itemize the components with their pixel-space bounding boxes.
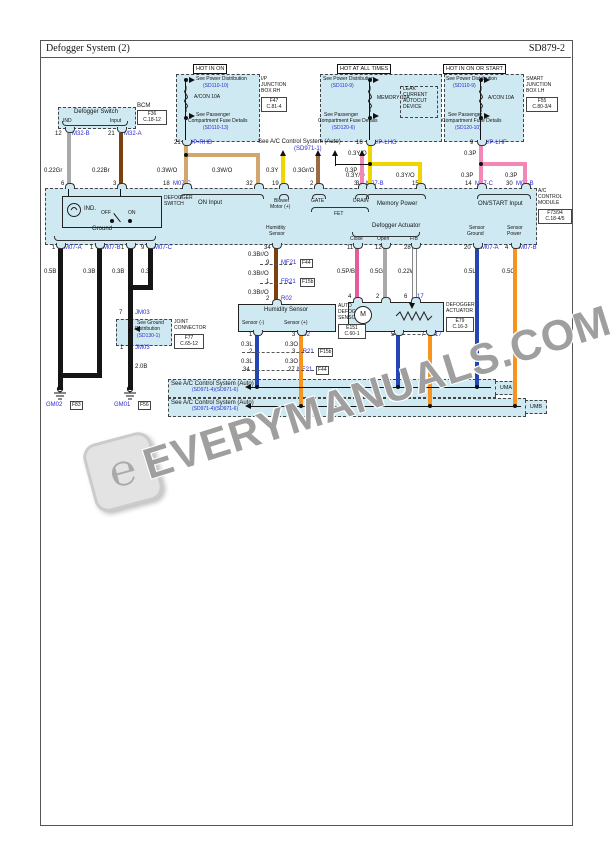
act-connector-box: E79 C.16-3 xyxy=(446,317,474,332)
hum-wl-2: 0.3L xyxy=(241,359,253,366)
arrow-icon-gate xyxy=(315,150,321,156)
connector-bump-icon xyxy=(473,243,483,249)
fet-brace xyxy=(311,207,369,212)
ds-band-pin2: 3 xyxy=(113,181,116,188)
jm-name-bot: JM03 xyxy=(135,345,150,352)
pl-see-power: See Power Distribution xyxy=(196,77,247,83)
joint-connector-box: F77 C.65-12 xyxy=(174,334,204,349)
wire-onstart-horizontal xyxy=(479,162,527,166)
junction-dot-icon xyxy=(128,286,132,290)
switch-contact-on xyxy=(128,219,132,223)
hum-r3r-box: F44 xyxy=(316,366,329,375)
pr-see-power-ref: (SD110-9) xyxy=(453,84,476,90)
junction-dot-icon xyxy=(479,162,483,166)
gnd-name-2: M07-B xyxy=(103,245,121,252)
connector-bump-icon xyxy=(297,330,307,336)
junction-dot-icon xyxy=(184,78,188,82)
hum-r1l: 1 xyxy=(249,332,252,339)
connector-bump-icon xyxy=(416,183,426,189)
on-wire-l: 0.3W/O xyxy=(157,168,177,175)
pm-see-power-ref: (SD110-9) xyxy=(331,84,354,90)
ds-pin1: 12 xyxy=(55,131,62,138)
arrow-icon-drain xyxy=(359,150,365,156)
onstart-brace xyxy=(477,194,531,199)
act-mid3: 6 xyxy=(404,294,407,301)
joint-code: C.65-12 xyxy=(176,341,202,347)
acm-annot3: MODULE xyxy=(538,201,559,207)
gm01-box: F56 xyxy=(138,401,151,410)
pl-annot3: BOX RH xyxy=(261,89,280,95)
banner-hot-in-on-or-start: HOT IN ON OR START xyxy=(443,64,506,74)
arrow-icon-pm-bot xyxy=(373,113,379,119)
pr-connector-box: F55 C.80-3/4 xyxy=(526,97,558,112)
manual-page: Defogger System (2) SD879-2 HOT IN ON HO… xyxy=(0,0,612,866)
pl-connector-box: F47 C.81-4 xyxy=(261,97,287,112)
humidity-plus: Sensor (+) xyxy=(284,321,307,327)
gnd-wire-1: 0.5B xyxy=(44,269,56,276)
gnd-wire-20b: 2.0B xyxy=(135,364,147,371)
pl-fuse-label: A/CON 10A xyxy=(194,95,220,101)
sensor-power-label2: Power xyxy=(507,232,521,238)
hum-c1-box: F44 xyxy=(300,259,313,268)
gm02-box: F83 xyxy=(70,401,83,410)
mem-wire-r: 0.3Y/O xyxy=(396,173,415,180)
pl-see-power-ref: (SD110-10) xyxy=(203,84,228,90)
acs-pin1: 19 xyxy=(272,181,279,188)
pl-see-pass-ref: (SD110-13) xyxy=(203,126,228,132)
connector-bump-icon xyxy=(272,299,282,305)
pr-out-name: I/P-LHF xyxy=(486,140,507,147)
arrow-icon-band1 xyxy=(245,384,251,390)
connector-bump-icon xyxy=(117,183,127,189)
on-pin-r: 32 xyxy=(246,181,253,188)
indicator-lamp-icon xyxy=(66,202,82,218)
hum-wire-2: 0.3Br/O xyxy=(248,271,269,278)
junction-dot-icon xyxy=(184,116,188,120)
ds-pin1-name: M32-B xyxy=(72,131,90,138)
connector-bump-icon xyxy=(65,127,75,133)
ds-wire2: 0.22Br xyxy=(92,168,110,175)
pm-leak-4: DEVICE xyxy=(403,105,422,111)
connector-bump-icon xyxy=(314,183,324,189)
wire-stub-input xyxy=(120,188,121,196)
wire-ground-2 xyxy=(97,243,102,378)
sp-pin: 4 xyxy=(505,245,508,252)
junction-dot-icon xyxy=(479,78,483,82)
wire-ground-3 xyxy=(128,243,133,390)
gnd-pin-3: 1 xyxy=(121,245,124,252)
jm-name-top: JM03 xyxy=(135,310,150,317)
switch-contact-off xyxy=(110,219,114,223)
connector-bump-icon xyxy=(411,243,421,249)
pm-out-name: I/P-LHG xyxy=(375,140,397,147)
acs-title: See A/C Control System (Auto) xyxy=(258,139,341,146)
pm-see-power: See Power Distribution xyxy=(323,77,374,83)
gm02-label: GM02 xyxy=(46,402,62,409)
module-switch-label2: SWITCH xyxy=(164,202,184,208)
connector-line-mf21 xyxy=(260,264,292,265)
joint-label2: CONNECTOR xyxy=(174,326,206,332)
connector-bump-icon xyxy=(381,243,391,249)
sp-name: M07-B xyxy=(519,245,537,252)
jm-pin-top: 7 xyxy=(119,310,122,317)
hum-c3-pin: 2 xyxy=(266,296,269,303)
wire-ground-1 xyxy=(58,243,63,390)
hum-wr-2: 0.3O xyxy=(285,359,298,366)
connector-line-mf21-low xyxy=(242,370,314,371)
connector-bump-icon xyxy=(511,243,521,249)
gnd-pin-1: 1 xyxy=(52,245,55,252)
memory-label: Memory Power xyxy=(377,201,417,208)
wire-ground-4 xyxy=(148,243,153,290)
ground-symbol-gm01 xyxy=(122,386,138,400)
arrow-icon-blower xyxy=(280,150,286,156)
jm-pin-bot: 1 xyxy=(120,345,123,352)
hum-r2r-box: F15b xyxy=(318,348,333,357)
module-humidity-label2: Sensor xyxy=(269,232,285,238)
act-conn-code: C.16-3 xyxy=(448,324,472,330)
pr-fuse-label: A/CON 10A xyxy=(488,96,514,102)
module-actuator-label: Defogger Actuator xyxy=(372,223,420,230)
junction-dot-icon xyxy=(428,404,432,408)
acm-conn-code: C.18-4/5 xyxy=(540,216,570,222)
connector-bump-icon xyxy=(253,330,263,336)
act-pin3: 28 xyxy=(404,245,411,252)
pr-out-pin: 9 xyxy=(470,140,473,147)
on-input-label: ON Input xyxy=(198,200,222,207)
wire-onstart-main xyxy=(479,145,483,188)
pl-see-pass2: Compartment Fuse Details xyxy=(188,119,247,125)
banner-hot-at-all-times: HOT AT ALL TIMES xyxy=(337,64,391,74)
hum-c2-box: F15b xyxy=(300,278,315,287)
fuse-icon-memory xyxy=(364,86,376,112)
hum-conn-code: C.60-1 xyxy=(340,331,364,337)
fuse-icon-acon-left xyxy=(180,86,192,112)
junction-dot-icon xyxy=(255,385,259,389)
connector-bump-icon xyxy=(426,330,436,336)
humidity-box-title: Humidity Sensor xyxy=(238,307,334,314)
bcm-connector-box: F36 C.18-12 xyxy=(137,110,167,125)
on-pin-l: 18 xyxy=(163,181,170,188)
connector-bump-icon xyxy=(381,297,391,303)
page-code: SD879-2 xyxy=(529,43,565,54)
connector-bump-icon xyxy=(353,297,363,303)
arrow-icon-memory-link xyxy=(332,150,338,156)
arrow-icon-pm-top xyxy=(373,77,379,83)
pl-conn-code: C.81-4 xyxy=(263,104,285,110)
switch-on-label: ON xyxy=(128,211,136,217)
os-pin-l: 14 xyxy=(465,181,472,188)
connector-bump-icon xyxy=(126,243,136,249)
memory-brace xyxy=(366,194,426,199)
pm-see-pass-ref: (SD120-6) xyxy=(332,126,355,132)
ds-band-pin1: 6 xyxy=(61,181,64,188)
acs-wire1: 0.3Y xyxy=(266,168,278,175)
act-annot2: ACTUATOR xyxy=(446,309,473,315)
connector-bump-icon xyxy=(353,243,363,249)
pl-out-pin: 21 xyxy=(174,140,181,147)
connector-bump-icon xyxy=(146,243,156,249)
connector-bump-icon xyxy=(394,330,404,336)
wire-memory-horizontal xyxy=(368,162,422,166)
junction-dot-icon xyxy=(479,116,483,120)
junction-dot-icon xyxy=(128,328,132,332)
connector-line-fr21-low xyxy=(242,352,314,353)
connector-bump-icon xyxy=(279,183,289,189)
defogger-switch-brace xyxy=(62,121,128,126)
wire-memory-main xyxy=(368,145,372,188)
connector-bump-icon xyxy=(366,140,376,146)
junction-dot-icon xyxy=(368,78,372,82)
wire-close-pink xyxy=(355,243,359,302)
bcm-label: BCM xyxy=(137,103,150,110)
junction-dot-icon xyxy=(58,373,62,377)
gnd-pin-2: 1 xyxy=(90,245,93,252)
motor-icon: M xyxy=(354,306,372,324)
on-input-brace xyxy=(180,194,264,199)
wire-on-horizontal xyxy=(184,153,260,157)
wire-link-horizontal xyxy=(335,164,370,165)
wire-humidity-brown xyxy=(274,243,278,304)
band2-terminal-box: UMB xyxy=(525,400,547,414)
wire-fb-white xyxy=(412,243,417,302)
gnd-name-1: M07-A xyxy=(64,245,82,252)
onstart-label: ON/START Input xyxy=(478,201,523,208)
banner-hot-in-on: HOT IN ON xyxy=(193,64,227,74)
fb-label: F/B xyxy=(410,237,418,243)
connector-bump-icon xyxy=(182,140,192,146)
act-wire1: 0.5P/B xyxy=(337,269,355,276)
band1-ref: (SD971-4)(SD971-6) xyxy=(192,388,238,394)
wire-input-brown xyxy=(119,133,123,188)
wire-ind-gray xyxy=(67,133,71,188)
fuse-icon-acon-right xyxy=(475,86,487,112)
gm01-label: GM01 xyxy=(114,402,130,409)
open-label: Open xyxy=(377,237,389,243)
ds-pin2-name: M32-A xyxy=(124,131,142,138)
connector-bump-icon xyxy=(182,183,192,189)
page-header: Defogger System (2) SD879-2 xyxy=(40,40,571,58)
pm-out-pin: 16 xyxy=(356,140,363,147)
connector-bump-icon xyxy=(117,127,127,133)
switch-off-label: OFF xyxy=(101,211,111,217)
fet-label: FET xyxy=(334,212,343,218)
hum-r1r: 3 xyxy=(292,332,295,339)
arrow-icon-pl-top xyxy=(189,77,195,83)
pl-out-name: I/P-RHB xyxy=(190,140,212,147)
pr-see-pass2: Compartment Fuse Details xyxy=(442,119,501,125)
connector-bump-icon xyxy=(477,183,487,189)
ground-brace xyxy=(54,236,156,241)
connector-bump-icon xyxy=(65,183,75,189)
arrow-icon-pr-bot xyxy=(484,113,490,119)
connector-line-fr21 xyxy=(260,283,292,284)
gate-brace xyxy=(312,194,326,199)
drain-label: DRAIN xyxy=(353,199,369,205)
on-wire-r: 0.3W/O xyxy=(212,168,232,175)
defogger-switch-title: Defogger Switch xyxy=(58,109,134,116)
pr-conn-code: C.80-3/4 xyxy=(528,104,556,110)
connector-bump-icon xyxy=(56,243,66,249)
acm-connector-box: F73/94 C.18-4/5 xyxy=(538,209,572,224)
acs-pin2: 2 xyxy=(310,181,313,188)
sensor-ground-label2: Ground xyxy=(467,232,484,238)
gnd-wire-2: 0.3B xyxy=(83,269,95,276)
hum-top-pin: 34 xyxy=(264,245,271,252)
connector-bump-icon xyxy=(254,183,264,189)
junction-dot-icon xyxy=(368,162,372,166)
connector-bump-icon xyxy=(366,183,376,189)
wire-humidity-blue xyxy=(255,330,259,387)
gnd-pin-4: 9 xyxy=(141,245,144,252)
hum-connector-box: E151 C.60-1 xyxy=(338,324,366,339)
os-wire-l: 0.3P xyxy=(461,173,473,180)
connector-bump-icon xyxy=(521,183,531,189)
arrow-icon-pr-top xyxy=(484,77,490,83)
hum-c3-name: R02 xyxy=(281,296,292,303)
connector-bump-icon xyxy=(272,243,282,249)
lamp-label: IND. xyxy=(84,206,96,213)
act-mid1: 4 xyxy=(348,294,351,301)
act-mid2: 2 xyxy=(376,294,379,301)
wire-open-gray xyxy=(383,243,387,302)
wire-stub-ind xyxy=(68,188,69,196)
sg-pin: 20 xyxy=(464,245,471,252)
humidity-minus: Sensor (-) xyxy=(242,321,264,327)
blower-brace xyxy=(279,194,289,199)
module-ground-label: Ground xyxy=(92,226,112,233)
junction-dot-icon xyxy=(513,404,517,408)
hum-wire-1: 0.3Br/O xyxy=(248,252,269,259)
close-label: Close xyxy=(350,237,363,243)
junction-dot-icon xyxy=(184,153,188,157)
ds-wire1: 0.22Gr xyxy=(44,168,62,175)
connector-bump-icon xyxy=(477,140,487,146)
wire-ground-2-elbow xyxy=(60,373,102,378)
connector-bump-icon xyxy=(95,243,105,249)
hum-wl-1: 0.3L xyxy=(241,342,253,349)
arrow-icon-ground-dist xyxy=(134,326,140,332)
band2-ref: (SD971-4)(SD971-6) xyxy=(192,407,238,413)
gnd-wire-3: 0.3B xyxy=(112,269,124,276)
page-title: Defogger System (2) xyxy=(46,43,130,54)
gnd-name-4: M07-C xyxy=(154,245,172,252)
ground-dist-ref: (SD130-1) xyxy=(137,334,160,340)
acs-wire2: 0.3Gr/O xyxy=(293,168,314,175)
bcm-conn-code: C.18-12 xyxy=(139,117,165,123)
junction-dot-icon xyxy=(368,116,372,120)
pr-see-pass-ref: (SD120-10) xyxy=(455,126,481,132)
hum-wr-1: 0.3O xyxy=(285,342,298,349)
gate-label: GATE xyxy=(311,199,324,205)
actuator-brace xyxy=(352,232,420,237)
potentiometer-arrow-icon xyxy=(409,303,415,309)
os-wire-r: 0.3P xyxy=(505,173,517,180)
sg-name: M07-A xyxy=(481,245,499,252)
potentiometer-icon xyxy=(396,310,432,322)
arrow-icon-pl-bot xyxy=(189,113,195,119)
sg-wire: 0.5L xyxy=(464,269,476,276)
pr-annot3: BOX LH xyxy=(526,89,544,95)
ds-pin2: 21 xyxy=(108,131,115,138)
os-pin-r: 30 xyxy=(506,181,513,188)
os-wire-top: 0.3P xyxy=(464,151,476,158)
ground-symbol-gm02 xyxy=(52,386,68,400)
blower-label2: Motor (+) xyxy=(270,205,290,211)
